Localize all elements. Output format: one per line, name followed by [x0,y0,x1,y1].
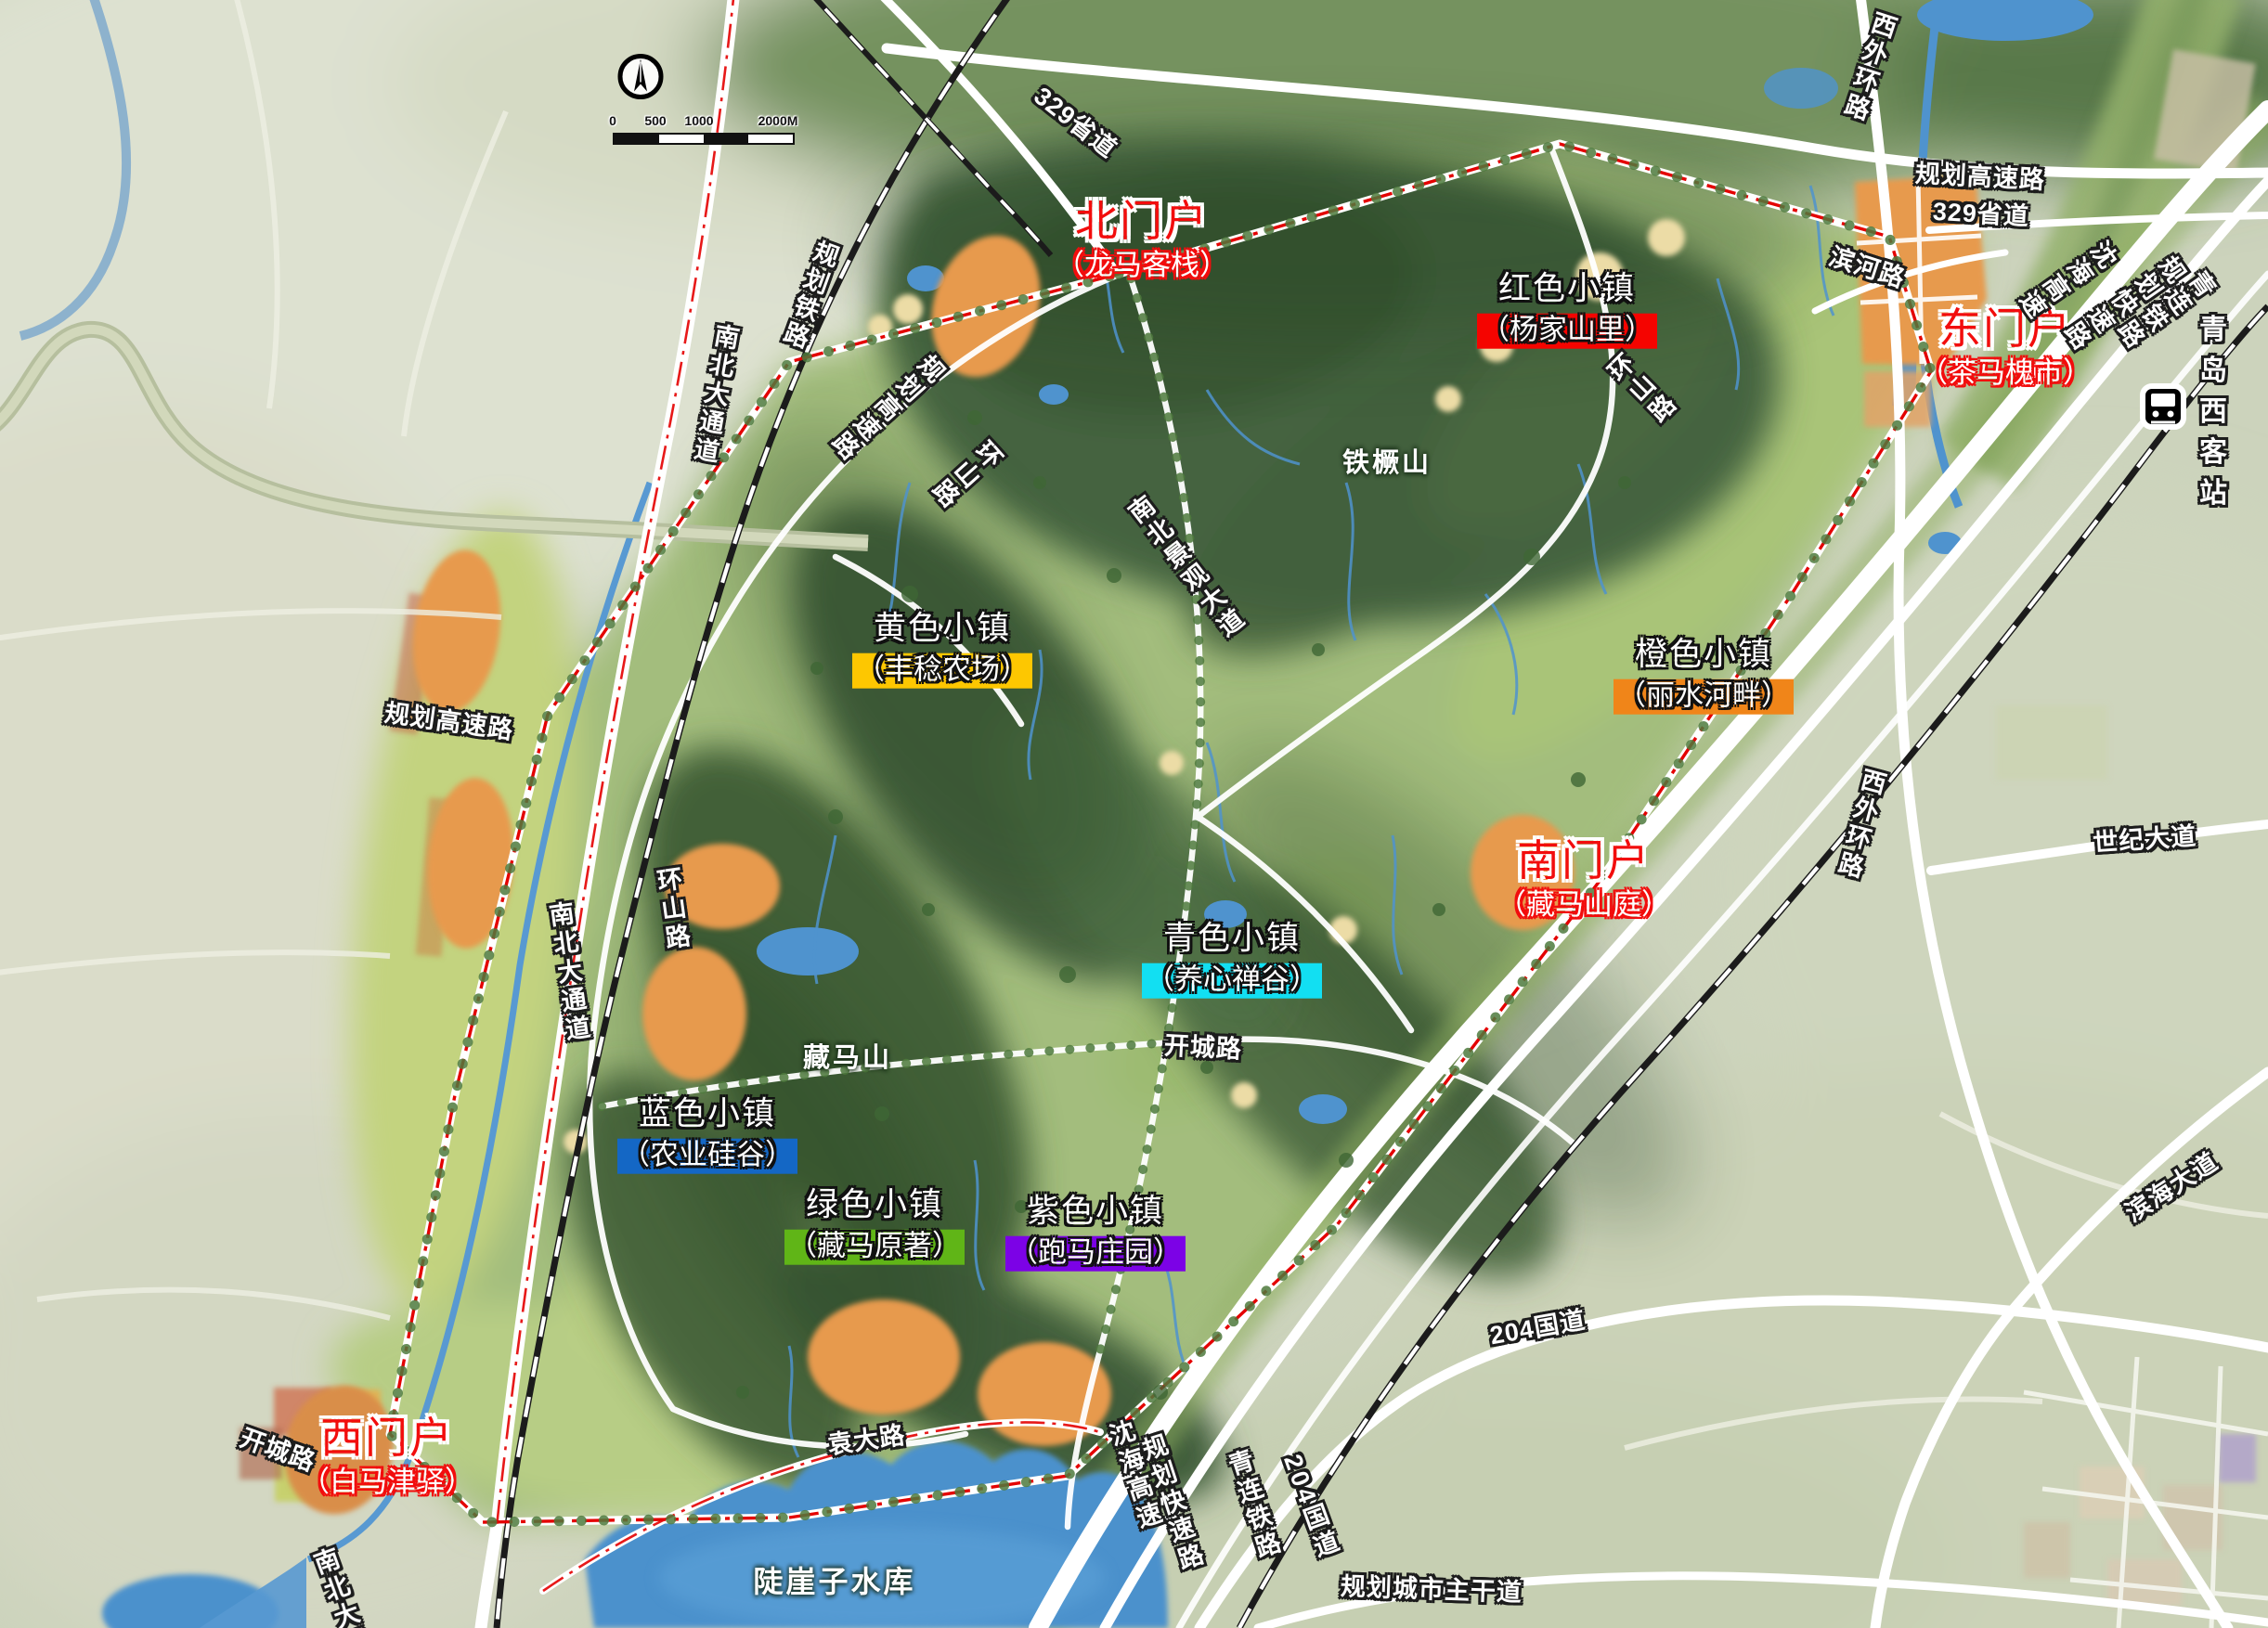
planning-map: 0 500 1000 2000M 青岛西客站 北门户（龙马客栈）东门户（茶马槐市… [0,0,2268,1628]
gate-subtitle: （白马津驿） [301,1466,473,1498]
road-label-25: 规划城市主干道 [1340,1566,1523,1609]
gate-label-3: 西门户（白马津驿） [301,1415,473,1498]
gate-subtitle: （龙马客栈） [1056,249,1228,281]
gate-title: 西门户 [301,1415,473,1463]
train-station-icon [2138,381,2188,436]
town-badge: （养心禅谷） [1142,963,1322,998]
town-title: 青色小镇 [1142,922,1322,958]
gate-title: 北门户 [1056,198,1228,246]
scale-tick: 0 [609,113,616,128]
place-label-1: 藏马山 [803,1036,892,1075]
town-label-4: 蓝色小镇（农业硅谷） [617,1097,797,1174]
road-label-10: 329省道 [1932,191,2030,232]
place-label-2: 陡崖子水库 [753,1558,915,1601]
town-title: 橙色小镇 [1614,638,1794,674]
town-label-6: 紫色小镇（跑马庄园） [1005,1195,1186,1272]
gate-label-2: 南门户（藏马山庭） [1497,837,1670,921]
town-badge: （跑马庄园） [1005,1235,1186,1271]
town-badge: （杨家山里） [1477,313,1657,348]
gate-subtitle: （茶马槐市） [1919,356,2092,389]
town-label-0: 红色小镇（杨家山里） [1477,272,1657,349]
scale-bar-segments [613,133,795,145]
town-badge: （农业硅谷） [617,1138,797,1173]
road-label-17: 开城路 [1163,1025,1243,1065]
town-label-3: 青色小镇（养心禅谷） [1142,922,1322,999]
town-label-5: 绿色小镇（藏马原著） [784,1188,965,1265]
town-title: 黄色小镇 [852,612,1032,648]
scale-tick: 500 [644,113,666,128]
gate-label-0: 北门户（龙马客栈） [1056,198,1228,281]
gate-title: 南门户 [1497,837,1670,885]
station-label: 青岛西客站 [2199,306,2229,510]
town-title: 紫色小镇 [1005,1195,1186,1231]
town-badge: （丰稔农场） [852,652,1032,688]
town-title: 蓝色小镇 [617,1097,797,1133]
gate-label-1: 东门户（茶马槐市） [1919,305,2092,389]
town-title: 红色小镇 [1477,272,1657,308]
scale-bar: 0 500 1000 2000M [613,113,795,145]
town-label-2: 橙色小镇（丽水河畔） [1614,638,1794,715]
scale-tick-labels: 0 500 1000 2000M [613,113,795,130]
scale-tick: 1000 [684,113,713,128]
town-badge: （丽水河畔） [1614,678,1794,714]
gate-subtitle: （藏马山庭） [1497,888,1670,921]
road-label-15: 世纪大道 [2092,816,2197,859]
town-badge: （藏马原著） [784,1229,965,1264]
place-label-0: 铁橛山 [1342,441,1432,480]
scale-tick: 2000M [758,113,798,128]
town-label-1: 黄色小镇（丰稔农场） [852,612,1032,689]
town-title: 绿色小镇 [784,1188,965,1224]
north-arrow-compass [616,53,665,106]
road-label-9: 规划高速路 [1914,153,2046,196]
